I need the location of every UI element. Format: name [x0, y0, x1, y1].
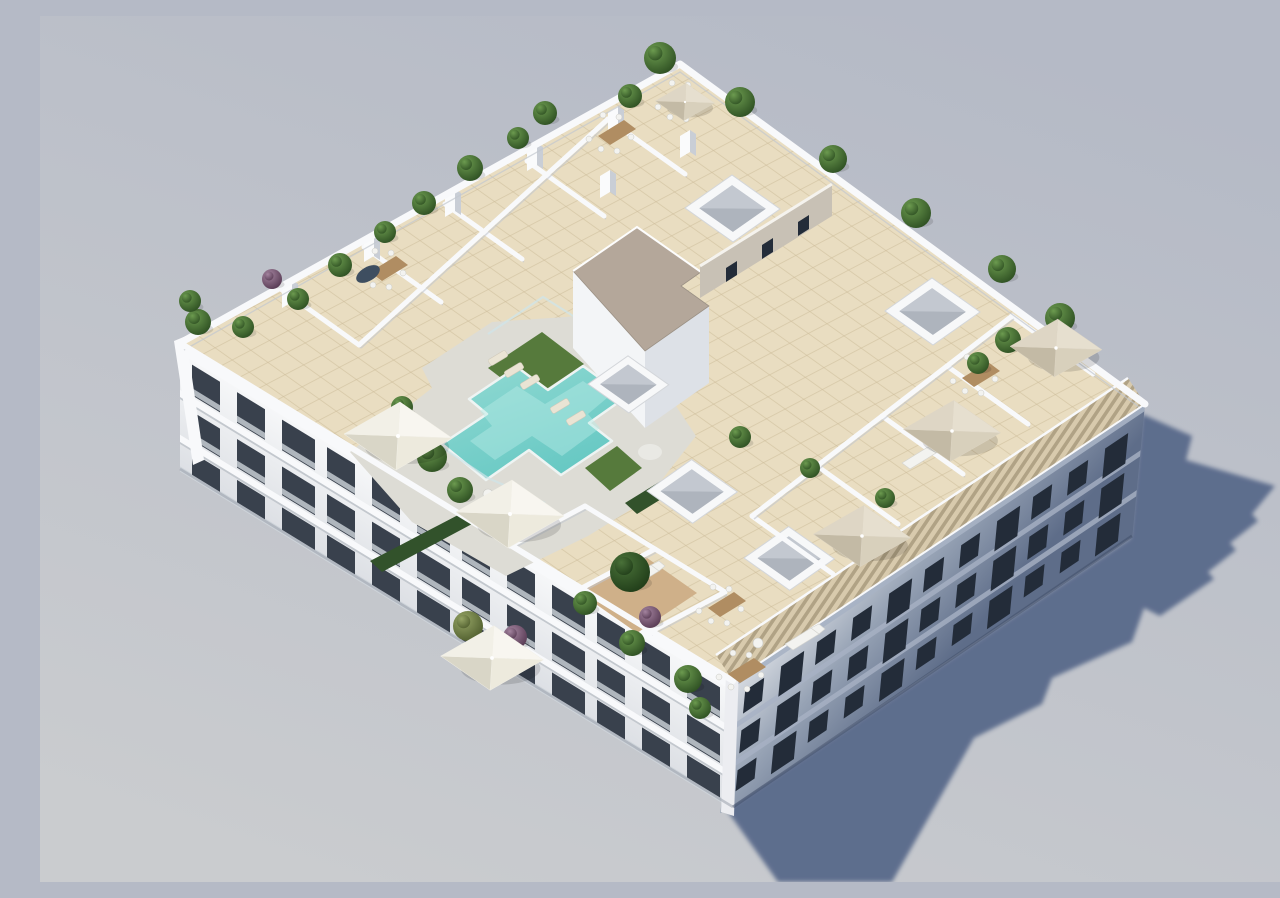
round-table: [753, 638, 763, 648]
pool-steps: [638, 444, 662, 460]
building-render: [40, 16, 1280, 882]
render-viewport: [40, 16, 1280, 882]
